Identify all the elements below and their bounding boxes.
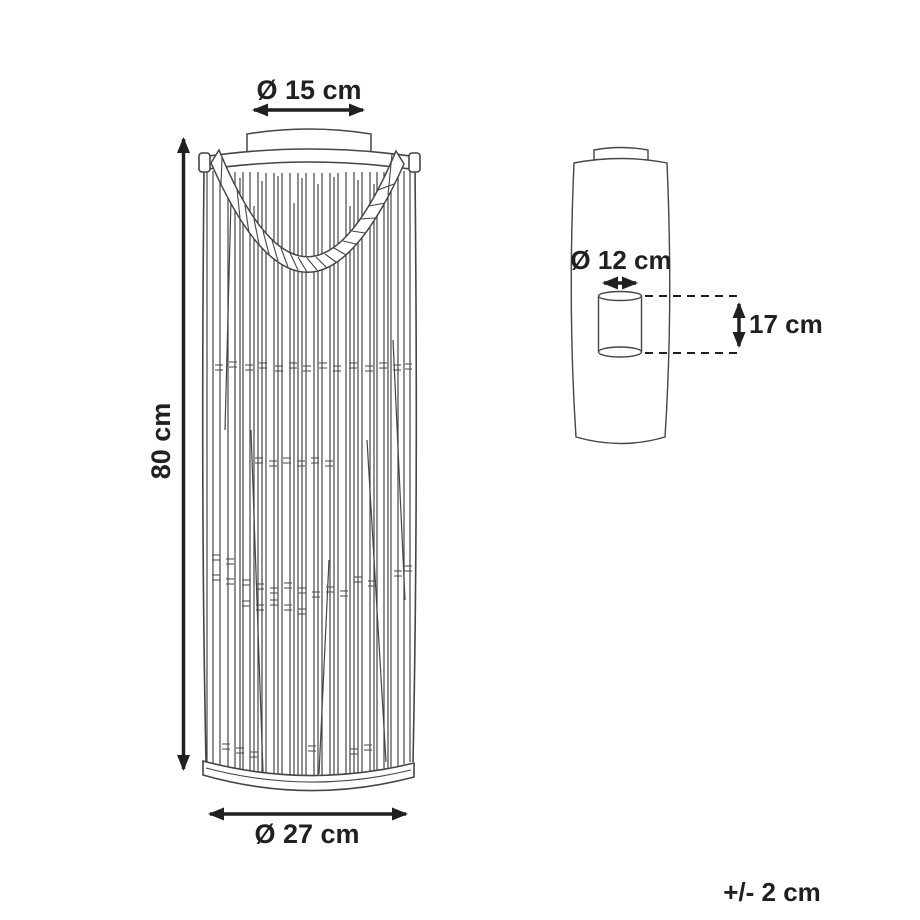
tolerance-note: +/- 2 cm [723, 877, 821, 907]
top-diameter-label: Ø 15 cm [256, 75, 361, 105]
diagram-canvas: Ø 15 cm 80 cm Ø 27 cm Ø 12 cm 17 cm +/- … [0, 0, 920, 920]
dimension-height: 80 cm [146, 139, 184, 769]
dimension-top-diameter: Ø 15 cm [254, 75, 363, 110]
dimension-bottom-diameter: Ø 27 cm [210, 814, 406, 849]
bottom-diameter-label: Ø 27 cm [254, 819, 359, 849]
inner-diameter-label: Ø 12 cm [570, 245, 671, 275]
product-dimension-diagram: Ø 15 cm 80 cm Ø 27 cm Ø 12 cm 17 cm +/- … [0, 0, 920, 920]
dimension-inner-height: 17 cm [739, 304, 823, 346]
side-view-cylinder [571, 148, 742, 444]
lantern-front-view [199, 129, 420, 791]
height-label: 80 cm [146, 403, 176, 480]
inner-height-label: 17 cm [749, 309, 823, 339]
lantern-top-rim [199, 149, 420, 172]
